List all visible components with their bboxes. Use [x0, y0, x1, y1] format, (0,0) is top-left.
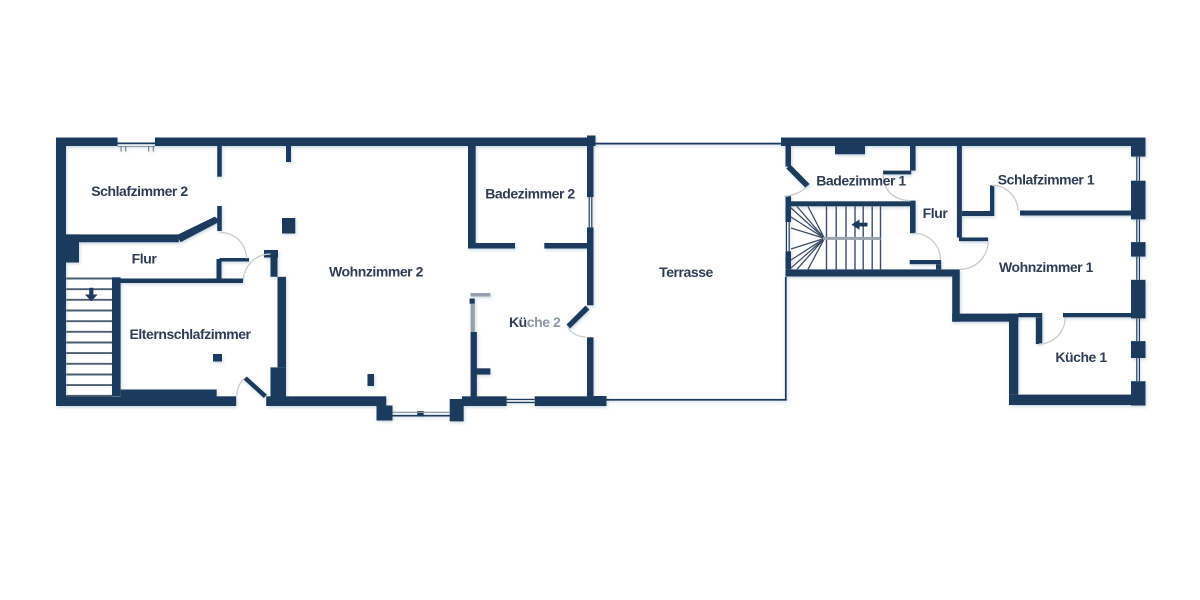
- svg-text:Küche 2: Küche 2: [509, 314, 561, 330]
- svg-text:Schlafzimmer 2: Schlafzimmer 2: [91, 183, 188, 199]
- svg-text:Wohnzimmer 2: Wohnzimmer 2: [329, 264, 424, 280]
- svg-text:Küche 1: Küche 1: [1055, 349, 1107, 365]
- svg-text:Flur: Flur: [132, 251, 158, 267]
- svg-text:Badezimmer 1: Badezimmer 1: [816, 173, 906, 189]
- svg-text:Schlafzimmer 1: Schlafzimmer 1: [998, 172, 1095, 188]
- svg-text:Badezimmer 2: Badezimmer 2: [485, 186, 575, 202]
- svg-text:Flur: Flur: [923, 205, 949, 221]
- svg-text:Wohnzimmer 1: Wohnzimmer 1: [999, 259, 1094, 275]
- svg-text:Elternschlafzimmer: Elternschlafzimmer: [129, 326, 251, 342]
- svg-text:Terrasse: Terrasse: [659, 264, 713, 280]
